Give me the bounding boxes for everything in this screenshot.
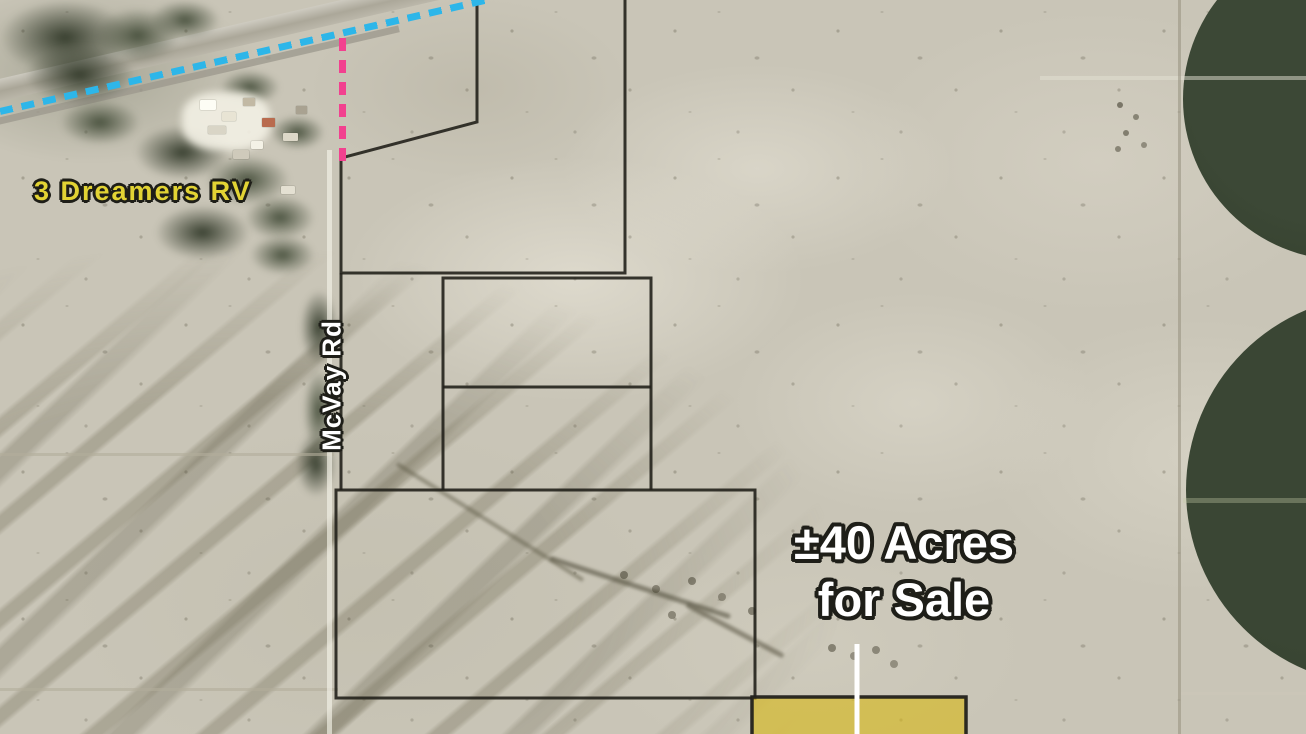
satellite-map: 3 Dreamers RV McVay Rd ±40 Acres for Sal… <box>0 0 1306 734</box>
parcel-outline-middle <box>443 278 651 490</box>
parcel-boundaries <box>0 0 1306 734</box>
rv-park-label: 3 Dreamers RV <box>34 176 252 207</box>
parcel-outline-north <box>341 0 625 273</box>
boundary-dashed-pink <box>339 38 346 170</box>
sale-label: ±40 Acres for Sale <box>758 514 1050 628</box>
road-label: McVay Rd <box>317 296 348 476</box>
parcel-outline-south <box>336 490 755 698</box>
sale-label-line1: ±40 Acres <box>758 514 1050 571</box>
sale-label-line2: for Sale <box>758 571 1050 628</box>
